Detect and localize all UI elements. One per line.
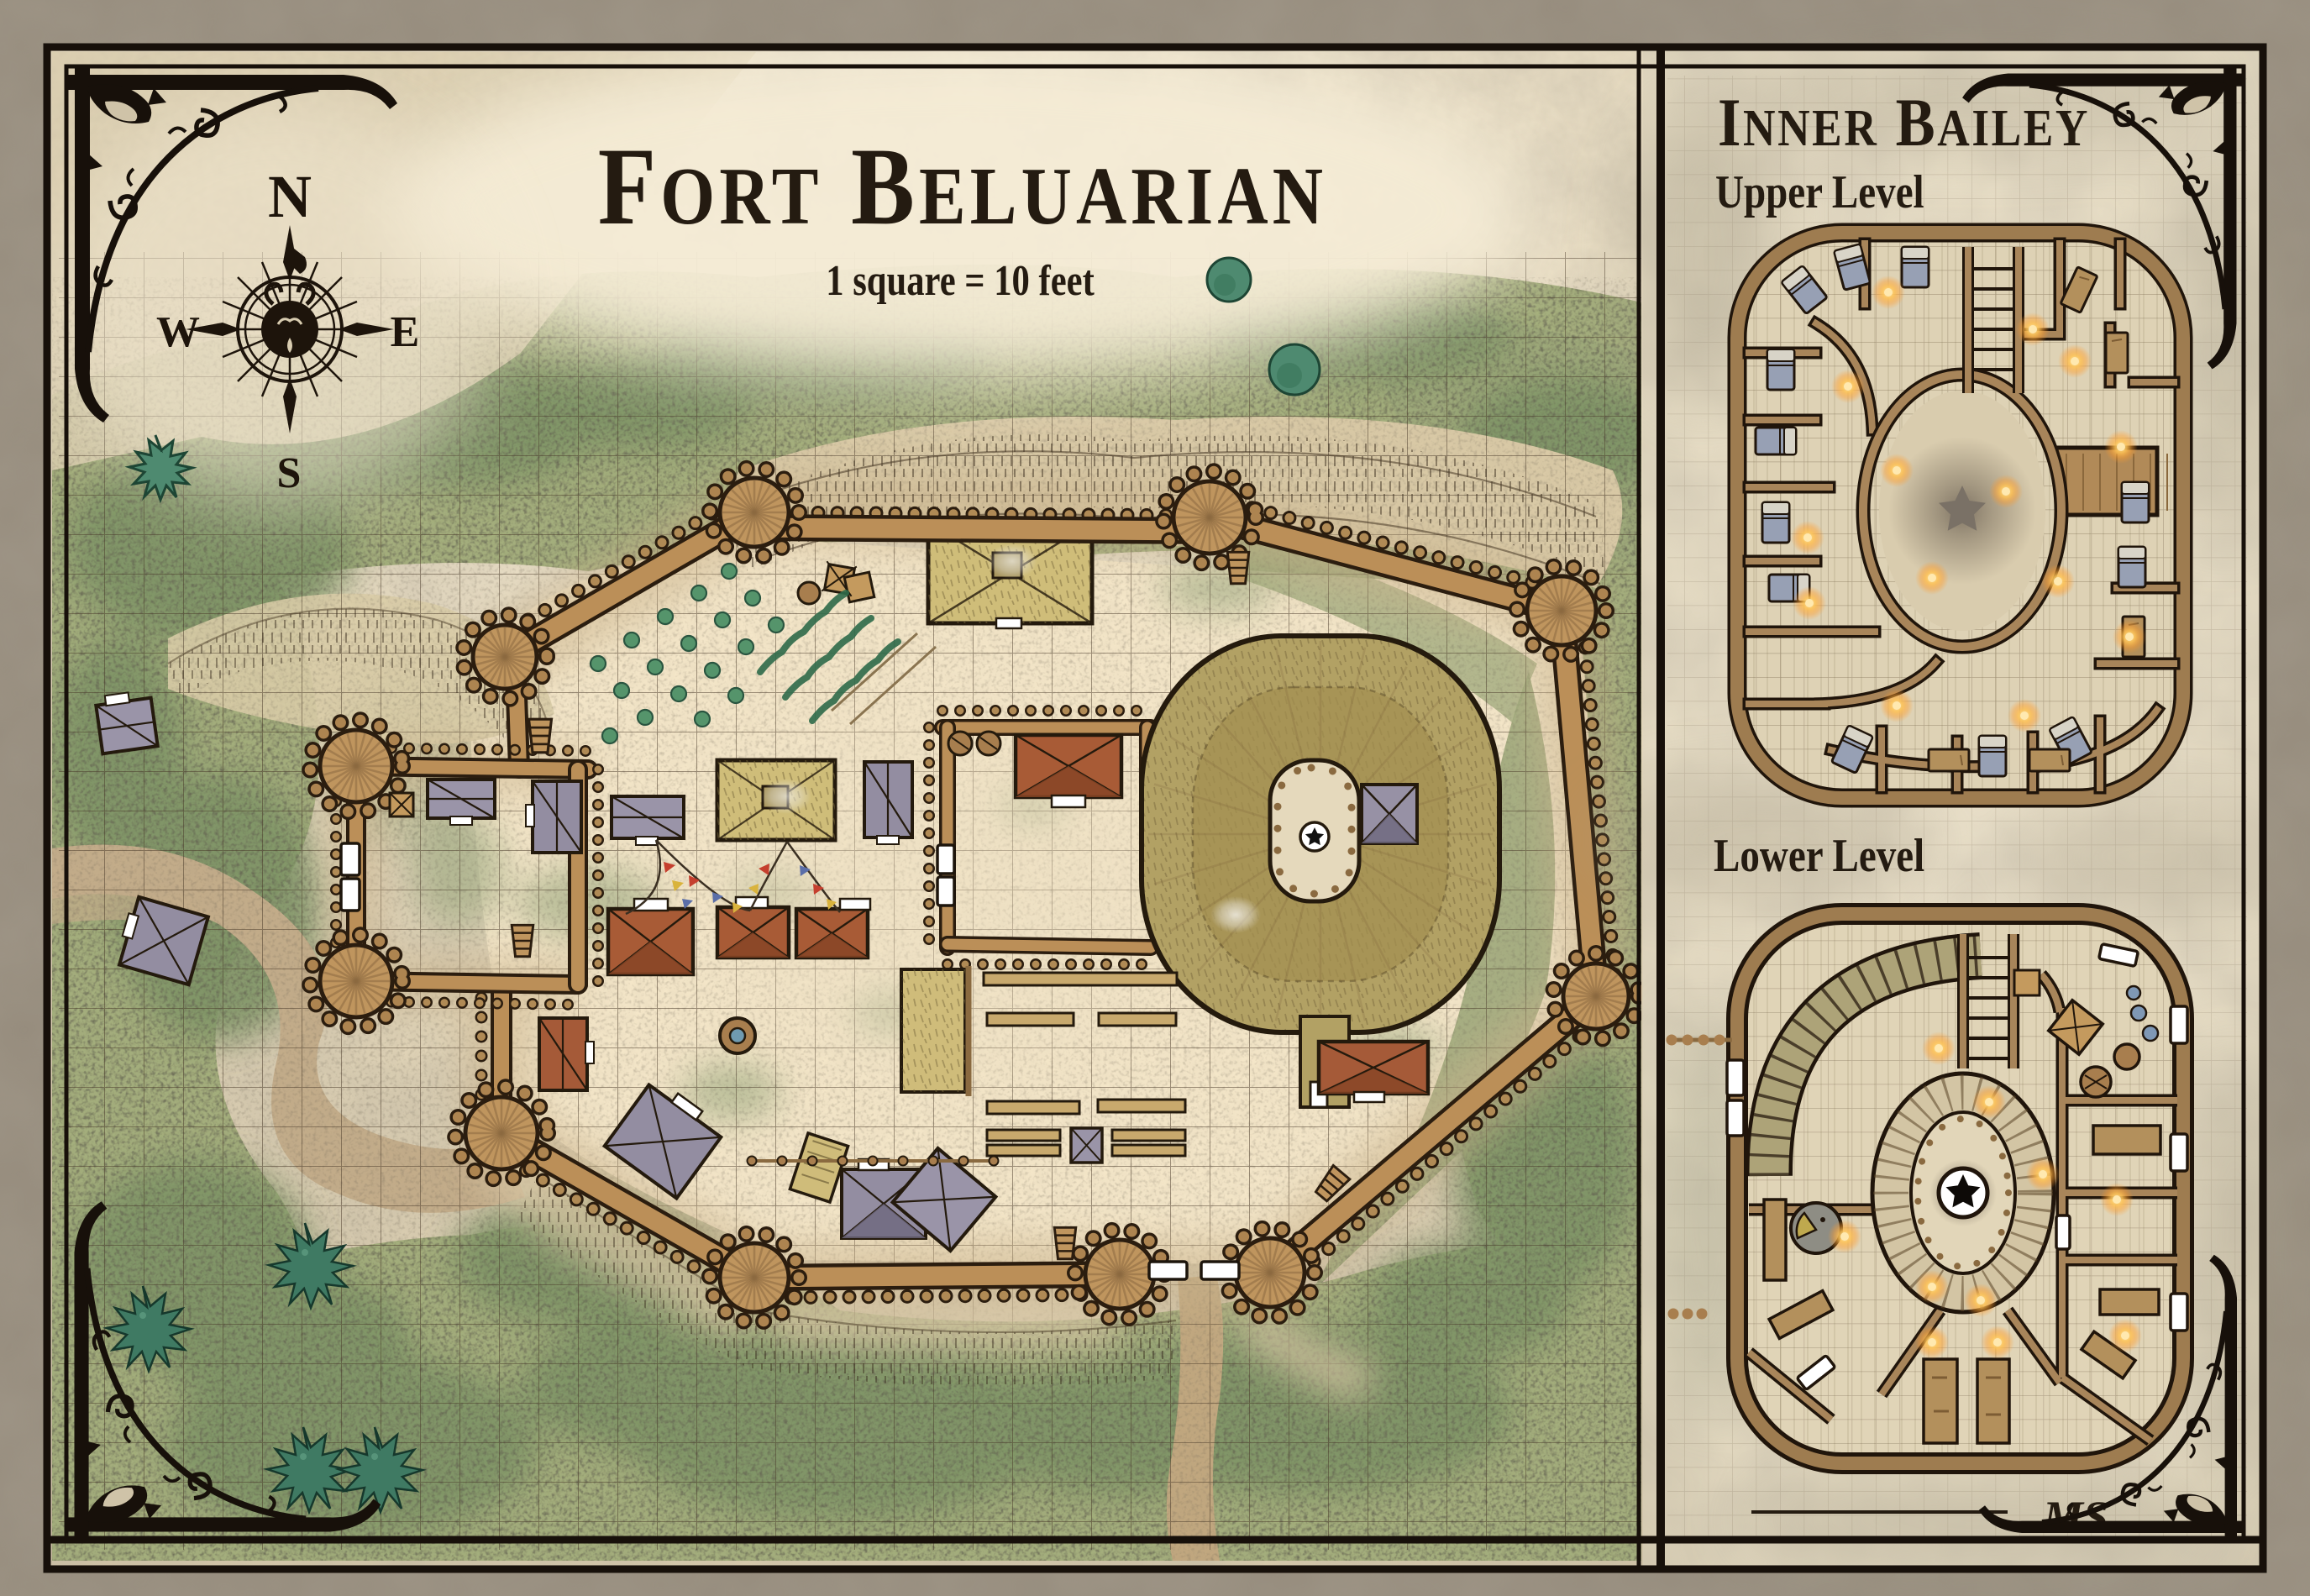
svg-text:W: W xyxy=(156,308,200,356)
svg-text:Lower Level: Lower Level xyxy=(1714,830,1924,882)
svg-text:E: E xyxy=(391,308,420,356)
svg-text:S: S xyxy=(277,449,302,497)
svg-text:N: N xyxy=(268,163,312,230)
svg-text:1 square = 10 feet: 1 square = 10 feet xyxy=(826,257,1095,305)
svg-text:Upper Level: Upper Level xyxy=(1715,166,1924,218)
